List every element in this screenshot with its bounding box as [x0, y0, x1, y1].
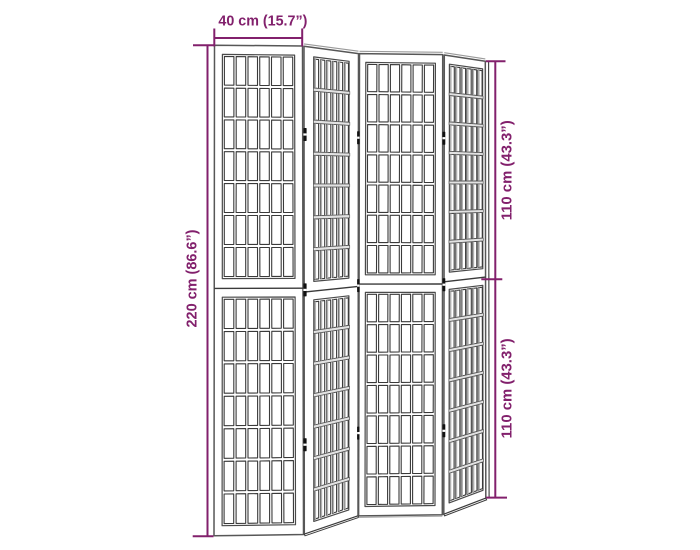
- svg-text:110 cm (43.3”): 110 cm (43.3”): [498, 338, 515, 438]
- svg-text:40 cm (15.7”): 40 cm (15.7”): [218, 12, 307, 29]
- svg-text:110 cm (43.3”): 110 cm (43.3”): [498, 120, 515, 220]
- svg-text:220 cm (86.6”): 220 cm (86.6”): [183, 230, 200, 328]
